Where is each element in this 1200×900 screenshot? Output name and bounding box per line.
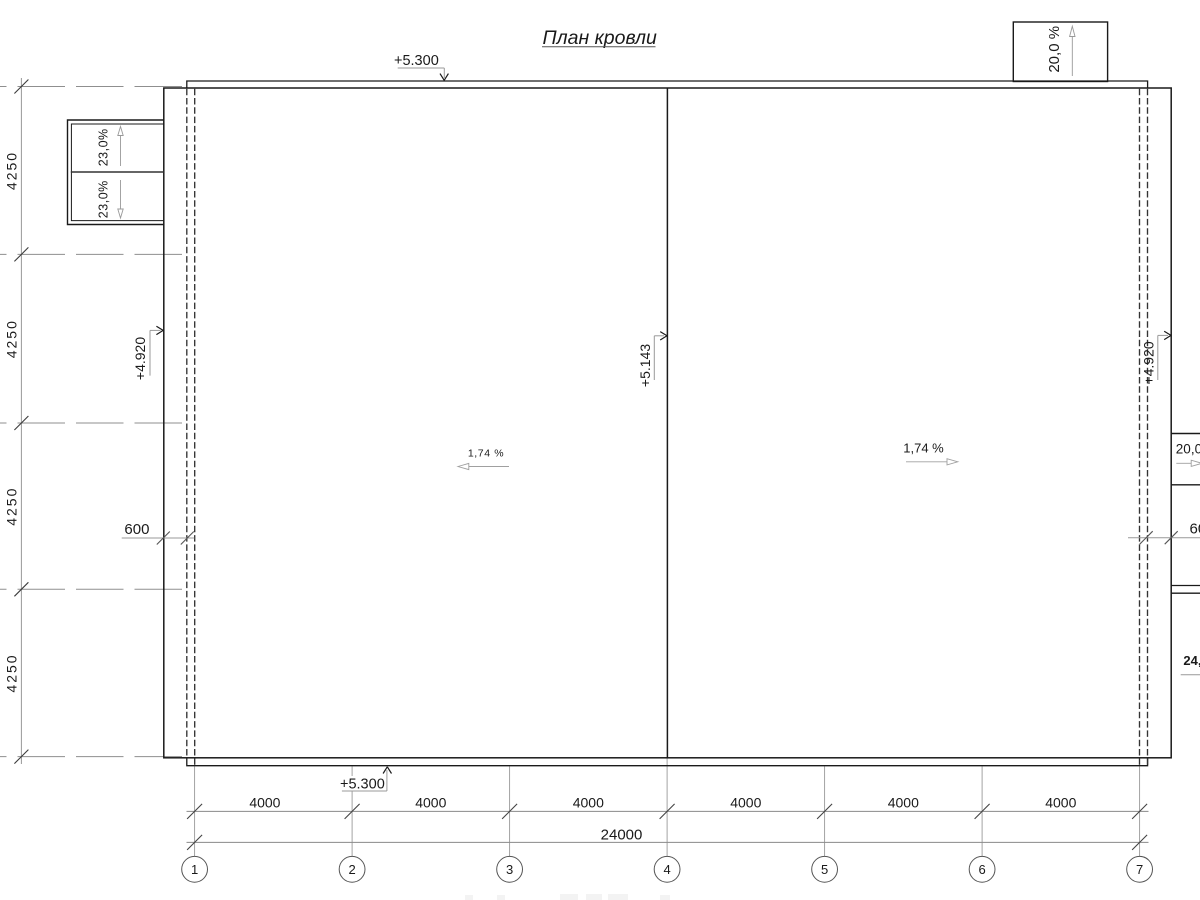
svg-text:3: 3 bbox=[506, 862, 513, 877]
svg-text:23,0%: 23,0% bbox=[97, 180, 111, 218]
svg-text:24000: 24000 bbox=[601, 826, 643, 843]
svg-text:+5.143: +5.143 bbox=[637, 344, 653, 387]
svg-text:5: 5 bbox=[821, 862, 828, 877]
svg-text:7: 7 bbox=[1136, 862, 1143, 877]
svg-text:4000: 4000 bbox=[888, 795, 919, 811]
svg-text:20,0: 20,0 bbox=[1176, 442, 1200, 457]
svg-text:+5.300: +5.300 bbox=[394, 53, 439, 69]
svg-text:1,74 %: 1,74 % bbox=[468, 447, 504, 459]
svg-text:+4.920: +4.920 bbox=[132, 337, 148, 380]
svg-text:4: 4 bbox=[663, 862, 670, 877]
svg-text:23,0%: 23,0% bbox=[97, 128, 111, 166]
svg-text:План кровли: План кровли bbox=[542, 27, 657, 49]
svg-text:4250: 4250 bbox=[4, 653, 20, 692]
svg-text:+5.300: +5.300 bbox=[340, 777, 385, 793]
svg-text:4000: 4000 bbox=[730, 795, 761, 811]
svg-text:2: 2 bbox=[348, 862, 355, 877]
svg-text:600: 600 bbox=[1190, 520, 1200, 537]
svg-text:4250: 4250 bbox=[4, 151, 20, 190]
svg-text:4250: 4250 bbox=[4, 319, 20, 358]
svg-text:4000: 4000 bbox=[249, 795, 280, 811]
svg-text:4000: 4000 bbox=[415, 795, 446, 811]
svg-text:600: 600 bbox=[124, 521, 149, 538]
svg-text:4250: 4250 bbox=[4, 487, 20, 526]
svg-text:+4.920: +4.920 bbox=[1141, 341, 1157, 384]
svg-text:24,7: 24,7 bbox=[1183, 653, 1200, 668]
svg-text:6: 6 bbox=[978, 862, 985, 877]
svg-text:20,0 %: 20,0 % bbox=[1046, 26, 1063, 73]
svg-text:4000: 4000 bbox=[1045, 795, 1076, 811]
svg-text:4000: 4000 bbox=[573, 795, 604, 811]
svg-text:1: 1 bbox=[191, 862, 198, 877]
svg-text:1,74 %: 1,74 % bbox=[903, 441, 944, 456]
